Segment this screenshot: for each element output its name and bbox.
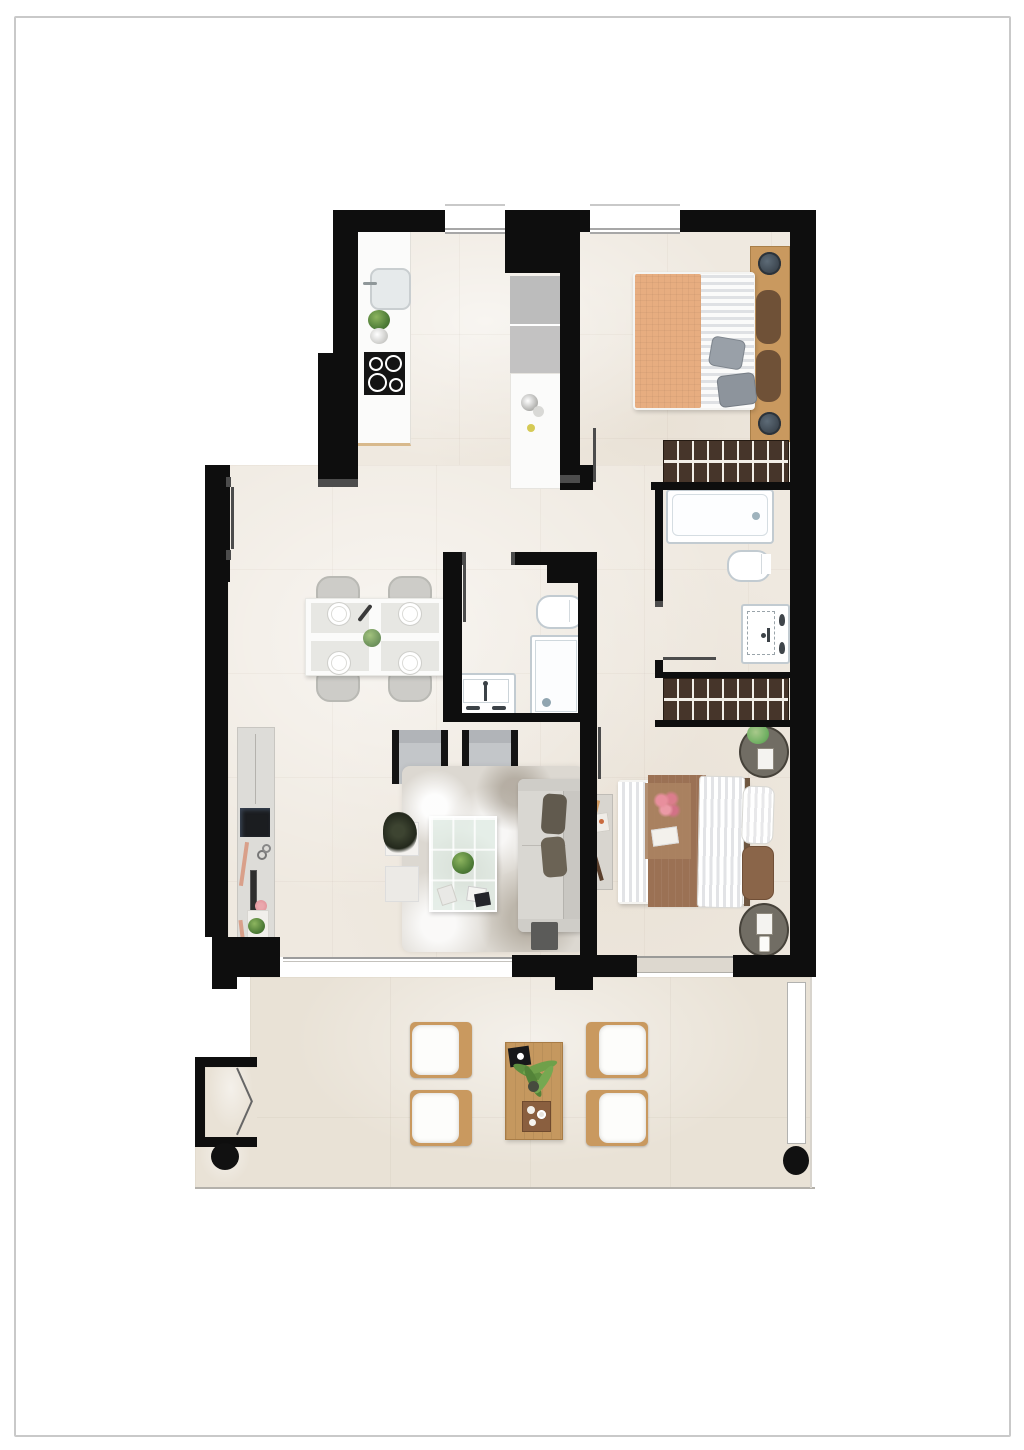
- toilet-tank: [761, 554, 771, 574]
- terrace-lounge-chair: [410, 1022, 472, 1078]
- central-bathroom-door-leaf: [463, 565, 466, 622]
- bed1-nightstand-lamp-bottom: [758, 412, 781, 435]
- wall-cbath-step: [547, 565, 578, 583]
- jamb-cap: [462, 552, 466, 565]
- wall-south-middle: [512, 955, 637, 977]
- entry-door-leaf: [231, 487, 234, 549]
- chair-cushion: [599, 1093, 646, 1143]
- floor-plan-page: [0, 0, 1024, 1450]
- kitchen-plant-icon: [368, 310, 390, 330]
- vanity-faucet-icon: [767, 628, 770, 642]
- window-bedroom2: [637, 956, 733, 973]
- jamb-cap: [560, 475, 580, 483]
- armchair-back: [469, 730, 511, 743]
- dark-plant-on-table: [383, 812, 417, 854]
- terrace-bottom-edge: [195, 1187, 815, 1189]
- nightstand-lamp: [757, 748, 774, 770]
- bed1-cushion-brown: [756, 350, 781, 402]
- wall-living-bedroom2: [580, 722, 597, 957]
- structural-column: [783, 1146, 809, 1175]
- bed2-pillow-brown: [742, 846, 774, 900]
- jamb-cap: [511, 552, 515, 565]
- glass-line: [283, 957, 512, 959]
- toilet-central: [536, 595, 584, 629]
- table-centerpiece-plant: [363, 629, 381, 647]
- bed2-pillow-white: [741, 785, 775, 844]
- vanity-faucet-dot: [483, 681, 488, 686]
- appliance-column-fridge: [510, 276, 560, 326]
- vanity-handle-icon: [466, 706, 480, 710]
- dinner-plate: [398, 602, 422, 626]
- wall-ensuite-west-upper: [655, 485, 663, 607]
- jamb-cap: [226, 550, 231, 560]
- wall-cbath-east: [578, 552, 597, 722]
- chair-cushion: [599, 1025, 646, 1075]
- wall-south-middle-tab: [555, 977, 593, 990]
- terrace-lounge-chair: [586, 1022, 648, 1078]
- bed1-nightstand-lamp-top: [758, 252, 781, 275]
- coffee-table-plant: [452, 852, 474, 874]
- window-bedroom1: [590, 204, 680, 234]
- island-counter: [510, 373, 562, 489]
- terrace-lounge-chair: [586, 1090, 648, 1146]
- shower-drain-icon: [542, 698, 551, 707]
- tv-screen: [240, 808, 270, 837]
- tray-cup: [527, 1106, 535, 1114]
- decor-plant: [248, 918, 265, 934]
- coffee-table-book-black: [474, 892, 491, 907]
- window-sill-line: [590, 232, 680, 234]
- sofa-armrest: [518, 779, 584, 791]
- armchair-back: [399, 730, 441, 743]
- sofa-cushion-dark: [540, 836, 567, 878]
- kitchen-vase-icon: [370, 328, 388, 344]
- terrace-table: [505, 1042, 563, 1140]
- terrace-lounge-chair: [410, 1090, 472, 1146]
- wall-cbath-west: [443, 552, 462, 722]
- vanity-faucet-icon: [484, 685, 487, 701]
- terrace-plant-pot: [528, 1081, 539, 1092]
- sofa: [518, 779, 584, 932]
- bed1-pillow-gray: [716, 372, 758, 408]
- hob-burner-icon: [389, 378, 403, 392]
- side-table: [385, 866, 419, 902]
- glass-line: [283, 961, 512, 962]
- bathtub: [666, 489, 774, 544]
- wall-kitchen-bedroom1: [560, 231, 580, 483]
- chair-cushion: [412, 1093, 459, 1143]
- nightstand-bottle: [759, 936, 770, 952]
- bed2-nightstand-round-bottom: [739, 903, 789, 957]
- sideboard-seam: [255, 734, 256, 804]
- decor-stick: [239, 842, 249, 886]
- window-sill-line: [445, 232, 505, 234]
- kitchen-sink: [370, 268, 411, 310]
- bed2-card: [651, 826, 679, 846]
- vanity-handle-icon: [492, 706, 506, 710]
- glass-coffee-table: [429, 816, 497, 912]
- tray-cup: [529, 1119, 536, 1126]
- tablet-dot: [517, 1052, 525, 1060]
- dinner-plate: [398, 651, 422, 675]
- decor-rings-icon: [262, 844, 271, 853]
- window-sill-line: [590, 228, 680, 230]
- bedroom1-wardrobe: [663, 440, 789, 484]
- structural-column: [211, 1143, 239, 1170]
- kitchen-hob: [364, 352, 405, 395]
- niche-wall-left: [195, 1057, 205, 1147]
- wall-kitchen-west-step: [318, 353, 334, 487]
- wall-bedroom1-south-east: [651, 482, 790, 490]
- hob-burner-icon: [369, 357, 383, 371]
- tv-sideboard: [237, 727, 275, 957]
- wall-wardrobe2-top: [655, 672, 790, 678]
- toilet-ensuite: [727, 550, 771, 582]
- island-decor-lemon: [527, 424, 535, 432]
- window-sill-line: [445, 228, 505, 230]
- armchair-arm-bar: [392, 730, 399, 784]
- vanity-ensuite: [741, 604, 790, 664]
- bedroom2-door-leaf: [598, 727, 601, 779]
- island-decor-dish: [533, 406, 544, 417]
- shower-tray: [530, 635, 582, 717]
- wall-south-right: [733, 955, 810, 977]
- bed2-flowers: [653, 790, 681, 820]
- bathtub-drain-icon: [752, 512, 760, 520]
- wall-left-lower: [205, 582, 228, 937]
- chair-cushion: [412, 1025, 459, 1075]
- terrace-tray: [522, 1101, 551, 1132]
- jamb-cap: [226, 477, 231, 487]
- vanity-soap-icon: [779, 614, 785, 626]
- wall-top-pillar: [505, 210, 590, 232]
- vanity-central: [456, 673, 516, 717]
- bed1-cushion-brown: [756, 290, 781, 344]
- terrace-right-edge: [810, 977, 812, 1188]
- dining-table: [305, 598, 445, 676]
- jamb-cap: [655, 601, 663, 607]
- dinner-plate: [327, 602, 351, 626]
- bedroom2-wardrobe: [663, 678, 789, 722]
- tray-cup: [537, 1110, 546, 1119]
- console-box-dot: [599, 819, 604, 824]
- bed1-pillow-gray: [708, 335, 747, 370]
- vanity-faucet-dot: [761, 633, 766, 638]
- ottoman: [531, 922, 558, 950]
- coffee-table-mag: [437, 884, 458, 906]
- wall-pillar-entry: [505, 231, 568, 273]
- wall-bedroom2-north: [655, 720, 790, 727]
- bed2-nightstand-round-top: [739, 726, 789, 778]
- wall-right-exterior: [790, 210, 816, 977]
- sliding-glass-door-living: [283, 957, 512, 964]
- jamb-cap: [318, 479, 358, 487]
- appliance-column-oven: [510, 326, 560, 373]
- wall-cbath-south: [443, 713, 597, 722]
- hob-burner-icon: [368, 373, 387, 392]
- wall-southwest-chunk: [212, 937, 280, 977]
- bed1-blanket-orange: [635, 274, 701, 408]
- vanity-soap-icon: [779, 642, 785, 654]
- wall-kitchen-west: [333, 210, 358, 487]
- kitchen-faucet-icon: [363, 282, 377, 285]
- wall-southwest-stub: [212, 977, 237, 989]
- dinner-plate: [327, 651, 351, 675]
- bed2-duvet: [697, 776, 745, 909]
- ensuite-door-leaf: [663, 657, 716, 660]
- hob-burner-icon: [385, 355, 402, 372]
- bedroom1-door-leaf: [593, 428, 596, 482]
- nightstand-plant: [747, 724, 769, 744]
- nightstand-lamp: [756, 913, 773, 935]
- window-kitchen: [445, 204, 505, 234]
- sofa-cushion-dark: [541, 793, 568, 835]
- terrace-planter: [787, 982, 806, 1144]
